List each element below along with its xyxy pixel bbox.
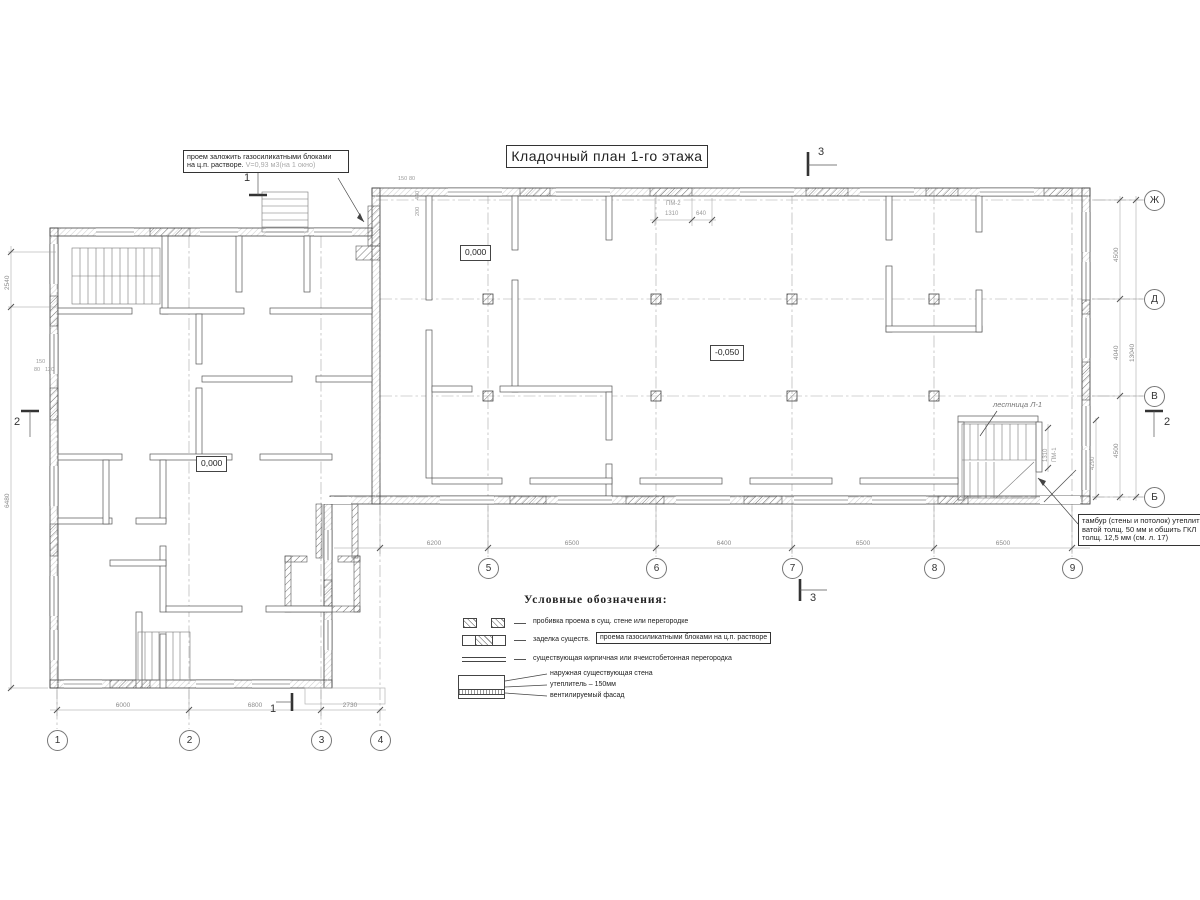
legend-item4-line1: наружная существующая стена <box>550 670 653 678</box>
legend-symbol-partition <box>462 657 506 662</box>
pm1-dim: 1310 <box>1043 449 1050 462</box>
legend-item3-label: существующая кирпичная или ячеистобетонн… <box>533 655 732 663</box>
dim-1-2: 6000 <box>116 702 130 709</box>
dim-2-3: 6800 <box>248 702 262 709</box>
entrance-door-gap <box>322 497 351 504</box>
pm2-label: ПМ-2 <box>666 201 681 208</box>
dim-7-8: 6500 <box>856 540 870 547</box>
axis-bubble-7: 7 <box>782 558 803 579</box>
dim-v-b: 4500 <box>1113 444 1120 458</box>
elevation-left-wing: 0,000 <box>196 456 227 472</box>
leftwall-dim-80: 80 <box>34 367 40 373</box>
dim-8-9: 6500 <box>996 540 1010 547</box>
tambour-note-line3: толщ. 12,5 мм (см. л. 17) <box>1082 534 1200 543</box>
legend-symbol-zadelka <box>462 635 506 646</box>
axis-bubble-zh: Ж <box>1144 190 1165 211</box>
legend-item2-boxed: проема газосиликатными блоками на ц.п. р… <box>596 632 771 644</box>
stair-label: лестница Л-1 <box>993 401 1042 410</box>
junction-dim-200: 200 <box>415 207 421 216</box>
axis-bubble-5: 5 <box>478 558 499 579</box>
dim-zh-d: 4500 <box>1113 248 1120 262</box>
floor-plan-drawing <box>0 0 1200 900</box>
legend-dash-1 <box>514 623 526 624</box>
axis-bubble-6: 6 <box>646 558 667 579</box>
pm1-label: ПМ-1 <box>1052 447 1059 462</box>
leftwall-dim-150: 150 <box>36 359 45 365</box>
legend-symbol-exterior-wall <box>458 675 505 699</box>
dim-right-total: 13040 <box>1129 344 1136 362</box>
elevation-hall: -0,050 <box>710 345 744 361</box>
dim-left-total: 6480 <box>4 494 11 508</box>
legend-item1-label: пробивка проема в сущ. стене или перегор… <box>533 618 688 626</box>
legend-item4-line2: утеплитель – 150мм <box>550 681 616 689</box>
legend-dash-3 <box>514 659 526 660</box>
elevation-right-wing: 0,000 <box>460 245 491 261</box>
section-1-label-top: 1 <box>244 172 250 185</box>
opening-note-volume: V=0,93 м3(на 1 окно) <box>246 160 316 169</box>
junction-dim-150: 150 <box>398 176 407 182</box>
axis-bubble-1: 1 <box>47 730 68 751</box>
legend-item4-line3: вентилируемый фасад <box>550 692 624 700</box>
dim-left-2540: 2540 <box>4 276 11 290</box>
axis-bubble-8: 8 <box>924 558 945 579</box>
leftwall-dim-120: 120 <box>45 367 54 373</box>
pm2-dim-a: 1310 <box>665 211 678 218</box>
legend-symbol-probivka-2 <box>491 618 505 628</box>
section-3-label-bottom: 3 <box>810 592 816 605</box>
dim-6-7: 6400 <box>717 540 731 547</box>
tambour-note: тамбур (стены и потолок) утеплить ватой … <box>1078 514 1200 546</box>
section-3-label-top: 3 <box>818 146 824 159</box>
opening-note-line2: на ц.п. растворе. V=0,93 м3(на 1 окно) <box>187 161 345 169</box>
legend-symbol-zadelka-hatch <box>475 636 493 645</box>
drawing-title: Кладочный план 1-го этажа <box>506 145 708 168</box>
dim-5-6: 6500 <box>565 540 579 547</box>
section-1-label-bottom: 1 <box>270 703 276 716</box>
axis-bubble-d: Д <box>1144 289 1165 310</box>
axis-bubble-3: 3 <box>311 730 332 751</box>
dim-3-4: 2730 <box>343 702 357 709</box>
legend-dash-2 <box>514 640 526 641</box>
section-2-label-left: 2 <box>14 416 20 429</box>
entrance-vestibule-walls <box>285 504 360 612</box>
drawing-sheet: { "title": "Кладочный план 1-го этажа", … <box>0 0 1200 900</box>
leader-lines <box>338 178 1078 696</box>
axis-bubble-9: 9 <box>1062 558 1083 579</box>
junction-dim-80: 80 <box>409 176 415 182</box>
dim-4-5: 6200 <box>427 540 441 547</box>
interior-partitions <box>58 196 1042 688</box>
stair-width-dim: 4290 <box>1090 457 1097 470</box>
section-2-label-right: 2 <box>1164 416 1170 429</box>
legend-item2-prefix: заделка существ. <box>533 636 590 644</box>
dim-d-v: 4040 <box>1113 346 1120 360</box>
legend-symbol-probivka-1 <box>463 618 477 628</box>
axis-bubble-2: 2 <box>179 730 200 751</box>
axis-bubble-v: В <box>1144 386 1165 407</box>
opening-note: проем заложить газосиликатными блоками н… <box>183 150 349 173</box>
axis-bubble-b: Б <box>1144 487 1165 508</box>
axis-bubble-4: 4 <box>370 730 391 751</box>
junction-dim-440: 440 <box>415 191 421 200</box>
leader-arrowhead-2 <box>1038 478 1046 486</box>
pm2-dim-b: 640 <box>696 211 706 218</box>
legend-symbol-facade-layer <box>459 689 504 695</box>
leader-arrowhead <box>357 213 364 222</box>
legend-heading: Условные обозначения: <box>524 594 668 607</box>
